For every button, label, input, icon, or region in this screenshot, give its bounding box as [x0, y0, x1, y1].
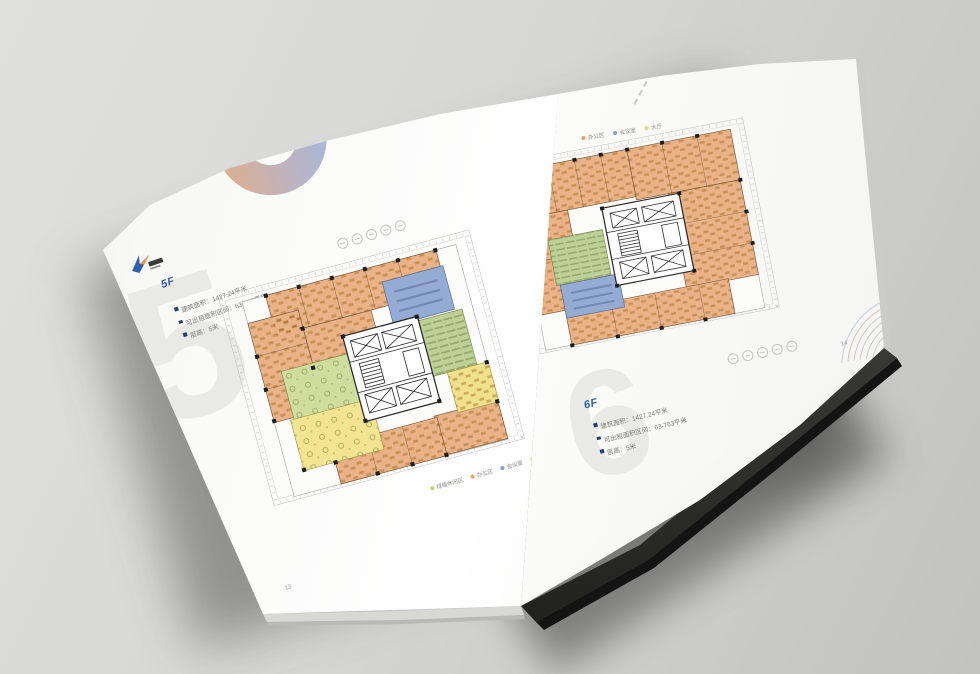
scene: 5 5F 建筑面积：1427.24平米 可出租面积区间：63-763平米 层高：… — [0, 0, 980, 674]
